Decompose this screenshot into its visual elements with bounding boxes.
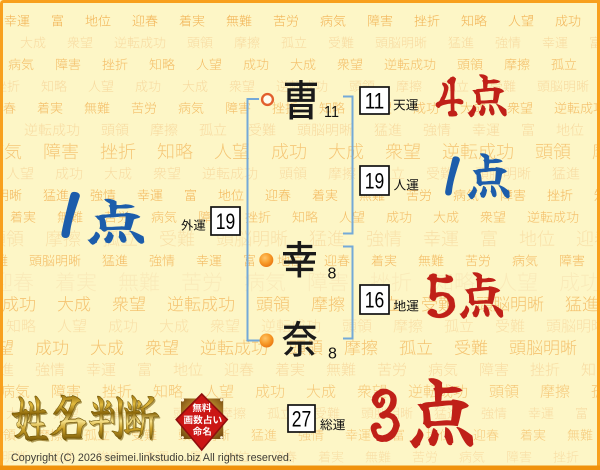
svg-text:16: 16 xyxy=(365,288,385,313)
svg-text:8: 8 xyxy=(328,265,337,282)
svg-text:19: 19 xyxy=(365,169,385,194)
svg-text:11: 11 xyxy=(365,89,385,114)
svg-text:Copyright (C) 2026 seimei.link: Copyright (C) 2026 seimei.linkstudio.biz… xyxy=(11,452,292,464)
svg-text:27: 27 xyxy=(292,407,312,432)
svg-text:8: 8 xyxy=(328,345,337,362)
svg-text:11: 11 xyxy=(324,104,339,121)
svg-text:19: 19 xyxy=(216,209,236,234)
